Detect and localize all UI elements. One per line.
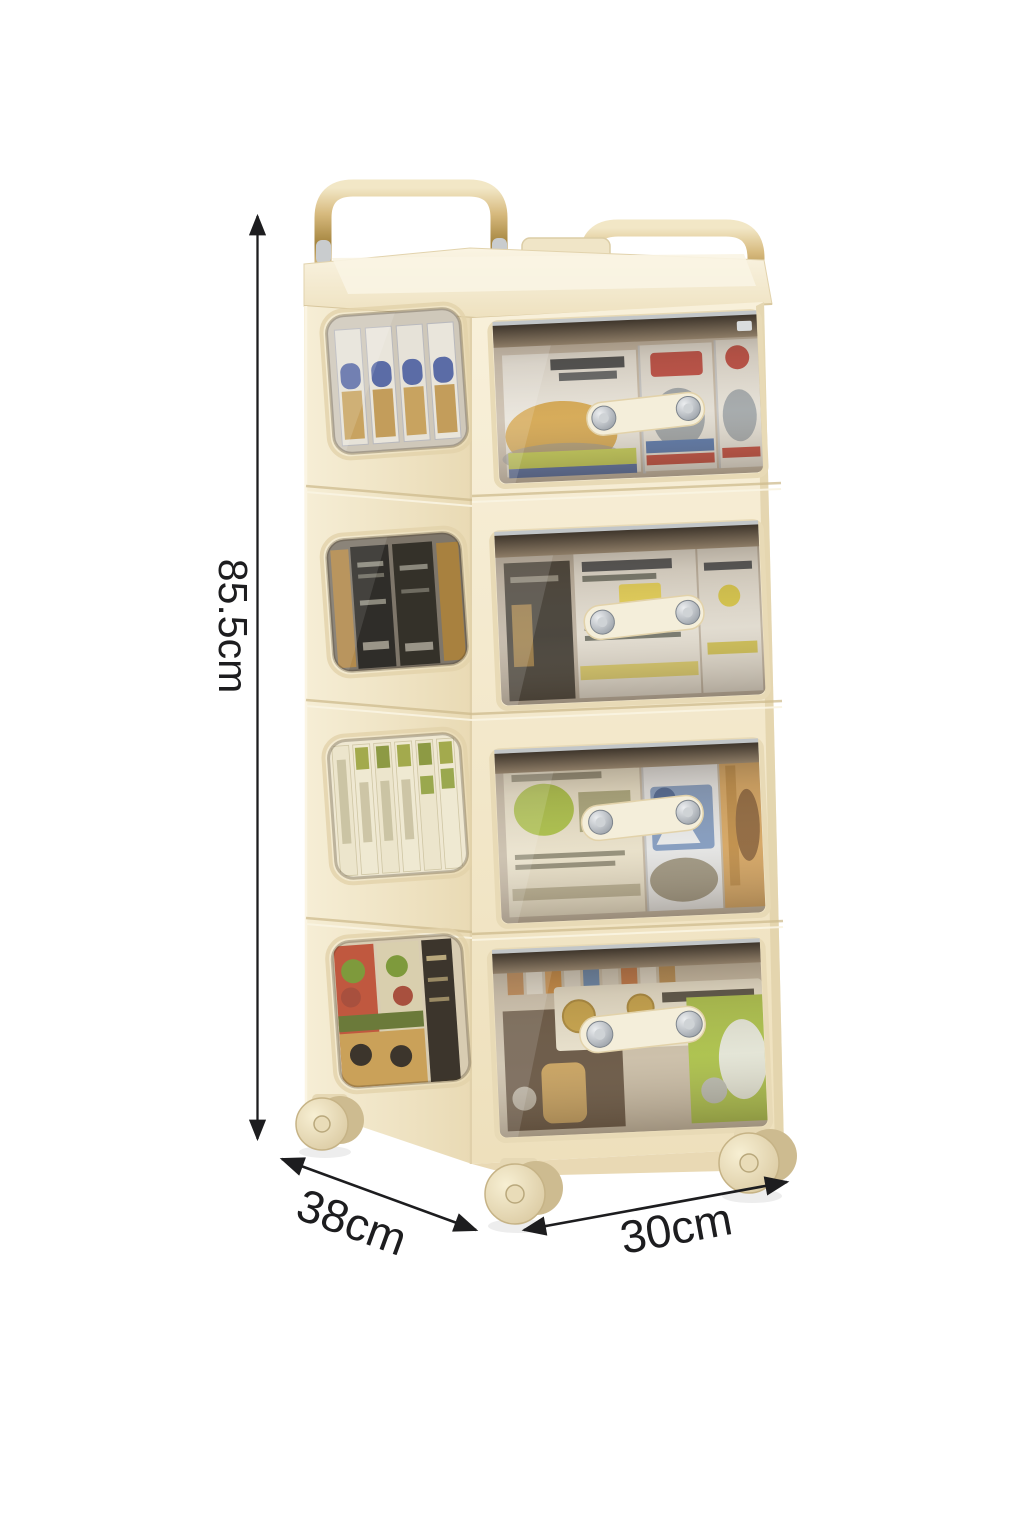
wheel-rear-left-hub	[314, 1116, 330, 1132]
green-label	[376, 745, 391, 768]
packet-cap	[402, 358, 424, 385]
packet-body	[373, 388, 396, 437]
green-label	[439, 741, 454, 764]
side-window-3	[322, 727, 474, 885]
packet-cap	[432, 356, 454, 383]
packet-body	[434, 384, 457, 433]
drawer-1	[489, 310, 766, 487]
green-label	[355, 747, 370, 770]
drawer-4	[489, 938, 771, 1141]
green-label	[420, 775, 434, 794]
green-label	[397, 744, 412, 767]
side-window-2	[320, 526, 474, 678]
product-image-stage: 85.5cm 38cm 30cm	[0, 0, 1024, 1536]
wheel-front-left-hub	[506, 1185, 524, 1203]
green-label	[418, 743, 433, 766]
product-image: 85.5cm 38cm 30cm	[0, 0, 1024, 1536]
drawer-1-latch	[737, 321, 752, 332]
side-window-1	[320, 302, 474, 460]
height-label: 85.5cm	[210, 559, 256, 693]
side-window-4	[326, 928, 477, 1093]
green-label	[441, 768, 455, 789]
storage-cart	[296, 188, 797, 1233]
packet-body	[403, 386, 426, 435]
drawer-3	[491, 738, 768, 927]
side-window-4-contents	[333, 938, 461, 1088]
left-handle-chrome-tip	[316, 240, 331, 264]
drawer-2	[491, 520, 768, 709]
wheel-front-right-hub	[740, 1154, 758, 1172]
